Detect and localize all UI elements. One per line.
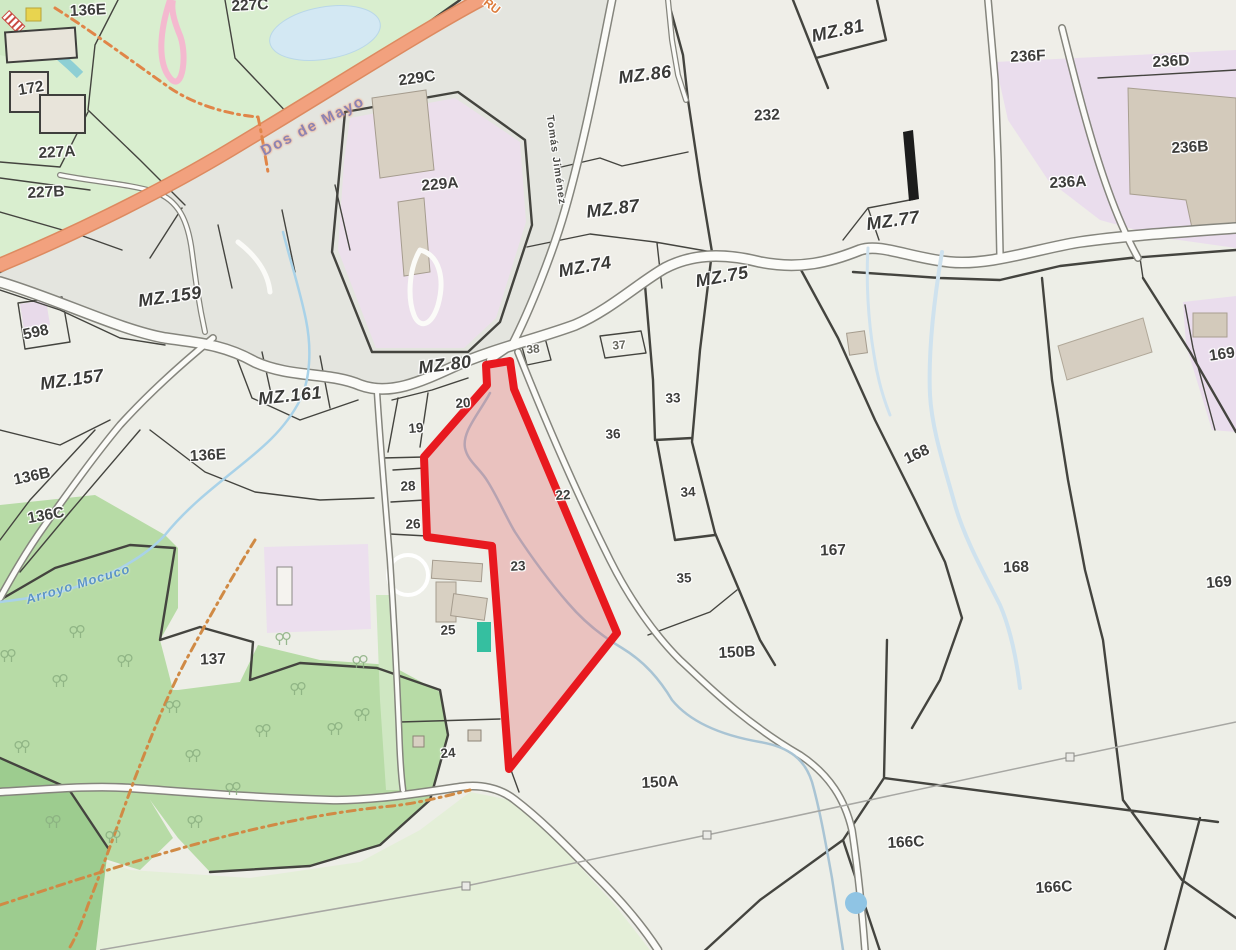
pool [477,622,491,652]
boundary-node [1066,753,1074,761]
pond-small [845,892,867,914]
building [277,567,292,605]
building [5,28,77,63]
building [1193,313,1227,337]
building [372,90,434,178]
boundary-node [703,831,711,839]
building [40,95,85,133]
building [451,594,488,621]
lavender-598 [20,300,50,329]
building [26,8,41,21]
building [431,560,482,581]
map-canvas[interactable] [0,0,1236,950]
map-viewport[interactable]: MZ.159MZ.157MZ.161MZ.80MZ.86MZ.87MZ.74MZ… [0,0,1236,950]
boundary-node [462,882,470,890]
lavender-229A [338,98,526,348]
building [468,730,481,741]
building [847,331,868,355]
terrain-layer [0,0,1236,950]
building [413,736,424,747]
